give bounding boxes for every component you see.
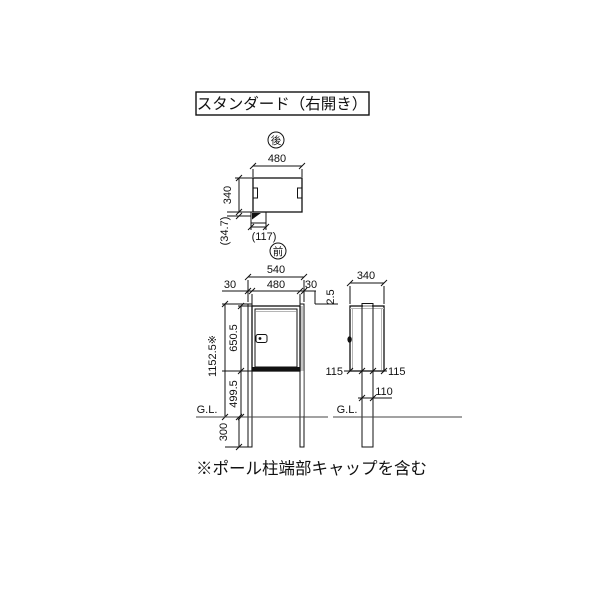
side-handle-bump [347, 336, 351, 342]
dimension-drawing: スタンダード（右開き） 後 480 340 (34.7) [0, 0, 600, 600]
title-box: スタンダード（右開き） [196, 92, 369, 115]
dim-front-total-height: 1152.5※ [207, 335, 219, 377]
side-view: 340 115 115 110 G.L. [325, 270, 462, 447]
dim-side-pole-depth: 110 [375, 386, 393, 398]
page-title: スタンダード（右開き） [197, 95, 368, 113]
dim-plan-pole-offset: (117) [252, 231, 277, 243]
dim-plan-width: 480 [268, 153, 286, 165]
plan-pole-marker [252, 213, 261, 220]
dim-plan-back-offset: (34.7) [219, 217, 231, 246]
ground-label-front: G.L. [197, 404, 218, 416]
side-box [350, 306, 384, 371]
dim-front-box-height: 650.5 [228, 324, 240, 352]
dim-front-cap: 2.5 [325, 289, 337, 304]
plan-box [253, 178, 302, 212]
front-view: 540 30 480 30 2.5 [196, 264, 338, 450]
dim-side-front-margin: 115 [325, 366, 343, 378]
dim-front-box-width: 480 [267, 279, 285, 291]
ground-label-side: G.L. [337, 404, 358, 416]
dim-side-depth: 340 [357, 270, 375, 282]
front-door-sill [252, 367, 300, 371]
top-view: 後 480 340 (34.7) (117) [219, 132, 305, 259]
dim-front-embed: 300 [218, 423, 230, 441]
dim-front-total-width: 540 [267, 264, 285, 276]
dim-front-under-box: 499.5 [228, 380, 240, 408]
dim-front-margin-right: 30 [305, 279, 317, 291]
door-handle-pin [259, 337, 262, 340]
front-right-pole-shade [301, 306, 304, 371]
drawing-canvas: スタンダード（右開き） 後 480 340 (34.7) [0, 0, 600, 600]
front-marker-label: 前 [273, 245, 284, 258]
rear-marker-label: 後 [271, 134, 282, 147]
dim-side-rear-margin: 115 [388, 366, 406, 378]
dim-plan-depth: 340 [222, 186, 234, 204]
note-text: ※ポール柱端部キャップを含む [196, 459, 427, 478]
dim-front-margin-left: 30 [224, 279, 236, 291]
